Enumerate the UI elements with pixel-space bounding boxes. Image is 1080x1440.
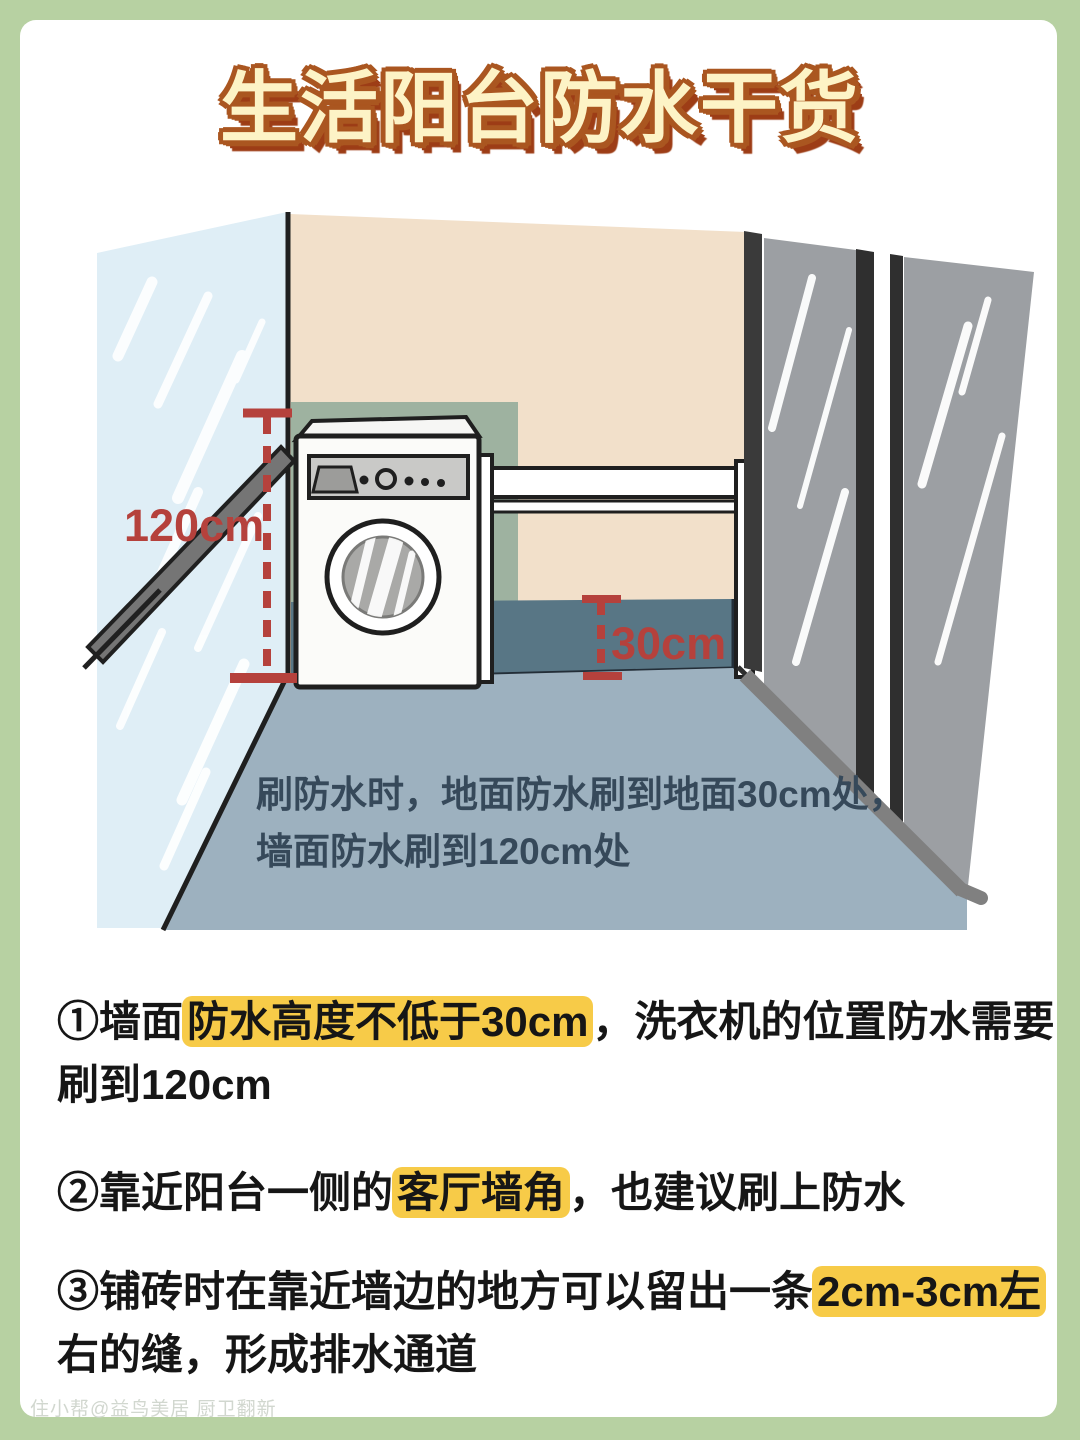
tip-3-line-1: ③铺砖时在靠近墙边的地方可以留出一条2cm-3cm左 [57,1260,1047,1323]
floor-caption: 刷防水时，地面防水刷到地面30cm处， 墙面防水刷到120cm处 [256,766,906,880]
washer-knob [377,470,395,488]
page: 生活阳台防水干货 [0,0,1080,1440]
washing-machine [296,417,479,687]
tip-1-line-1: ①墙面防水高度不低于30cm，洗衣机的位置防水需要 [57,990,1047,1053]
wall-measure-label: 120cm [124,500,264,552]
tip-2-line-1: ②靠近阳台一侧的客厅墙角，也建议刷上防水 [57,1161,1047,1224]
highlight: 2cm-3cm左 [812,1266,1046,1317]
floor-caption-line1: 刷防水时，地面防水刷到地面30cm处， [256,766,906,823]
floor-caption-line2: 墙面防水刷到120cm处 [256,823,906,880]
highlight: 客厅墙角 [392,1167,570,1218]
floor-measure-label: 30cm [611,618,726,670]
tips-list: ①墙面防水高度不低于30cm，洗衣机的位置防水需要 刷到120cm ②靠近阳台一… [57,990,1047,1386]
tip-1: ①墙面防水高度不低于30cm，洗衣机的位置防水需要 刷到120cm [57,990,1047,1116]
tip-3-line-2: 右的缝，形成排水通道 [57,1323,1047,1386]
highlight: 防水高度不低于30cm [182,996,593,1047]
tip-2: ②靠近阳台一侧的客厅墙角，也建议刷上防水 [57,1161,1047,1224]
detergent-drawer [313,467,357,492]
watermark: 住小帮@益鸟美居 厨卫翻新 [30,1394,277,1421]
tip-3: ③铺砖时在靠近墙边的地方可以留出一条2cm-3cm左 右的缝，形成排水通道 [57,1260,1047,1386]
tip-1-line-2: 刷到120cm [57,1053,1047,1116]
